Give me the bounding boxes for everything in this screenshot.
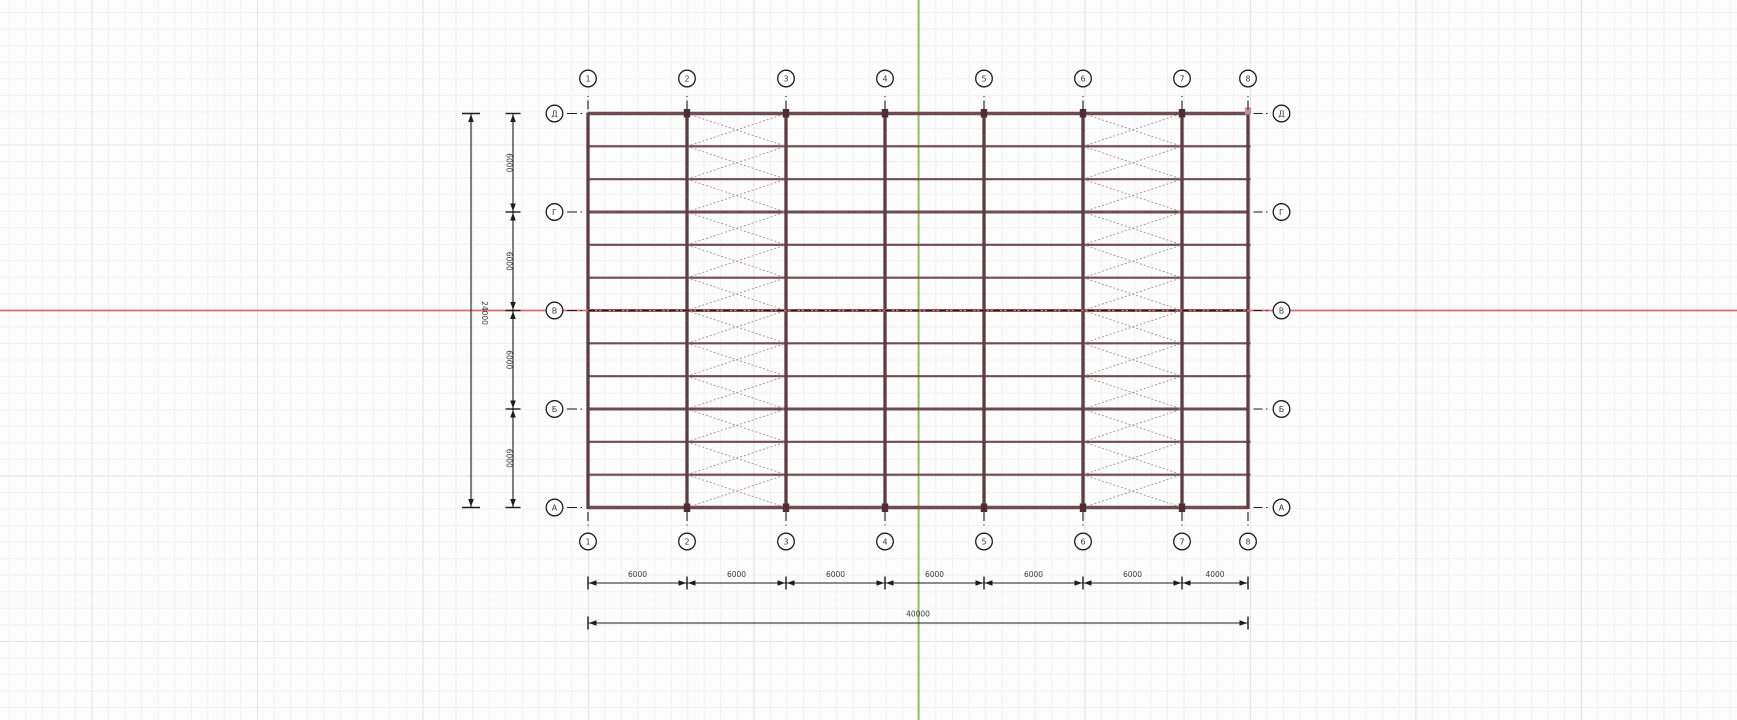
dimension-segment-label[interactable]: 6000: [505, 449, 514, 468]
dimension-segment-label[interactable]: 6000: [505, 153, 514, 172]
column-section-marker[interactable]: [1179, 504, 1185, 513]
model-viewport[interactable]: 24000 40000 6000600060006000600060006000…: [0, 0, 1737, 720]
column-section-marker[interactable]: [783, 109, 789, 118]
grid-bubble-label: 5: [981, 74, 986, 83]
dimensions: 24000 40000 6000600060006000600060006000…: [462, 114, 1248, 630]
dimension-arrow: [1084, 580, 1092, 586]
dimension-segment-label[interactable]: 6000: [505, 252, 514, 271]
grid-bubble-label: А: [552, 503, 558, 512]
dimension-segment-label[interactable]: 6000: [826, 570, 845, 579]
dimension-arrow: [688, 580, 696, 586]
dimension-arrow: [510, 204, 516, 212]
dimension-segment-label[interactable]: 6000: [925, 570, 944, 579]
dimension-arrow: [976, 580, 984, 586]
dimension-segment-label[interactable]: 6000: [1024, 570, 1043, 579]
dimension-arrow: [589, 620, 597, 626]
grid-bubble-label: 6: [1080, 74, 1085, 83]
grid-bubble-label: 3: [783, 537, 788, 546]
grid-bubble-label: 4: [882, 74, 887, 83]
dimension-arrow: [886, 580, 894, 586]
grid-bubble-label: 1: [585, 74, 590, 83]
column-section-marker[interactable]: [684, 109, 690, 118]
grid-bubble-label: 2: [684, 74, 689, 83]
column-section-marker[interactable]: [981, 109, 987, 118]
dimension-arrow: [510, 311, 516, 319]
grid-bubble-label: 6: [1080, 537, 1085, 546]
column-section-marker[interactable]: [684, 504, 690, 513]
dimension-arrow: [589, 580, 597, 586]
dimension-segment-label[interactable]: 6000: [1123, 570, 1142, 579]
dimension-segment-label[interactable]: 6000: [727, 570, 746, 579]
grid-bubble-label: Д: [551, 109, 557, 118]
dimension-arrow: [1240, 580, 1248, 586]
grid-bubble-label: Г: [552, 208, 557, 217]
grid-bubble-label: 2: [684, 537, 689, 546]
column-section-marker[interactable]: [882, 109, 888, 118]
dimension-total-left-label[interactable]: 24000: [480, 301, 489, 325]
dimension-total-bottom-label[interactable]: 40000: [906, 610, 930, 619]
dimension-arrow: [510, 410, 516, 418]
grid-bubble-label: 3: [783, 74, 788, 83]
dimension-arrow: [510, 114, 516, 122]
dimension-arrow: [510, 213, 516, 221]
dimension-arrow: [510, 302, 516, 310]
drawing-svg: 24000 40000 6000600060006000600060006000…: [0, 0, 1737, 720]
dimension-arrow: [778, 580, 786, 586]
dimension-arrow: [510, 401, 516, 409]
grid-bubble-label: Б: [552, 405, 558, 414]
dimension-arrow: [1174, 580, 1182, 586]
dimension-arrow: [985, 580, 993, 586]
grid-bubble-label: А: [1279, 503, 1285, 512]
grid-bubble-label: 8: [1245, 537, 1250, 546]
column-section-marker[interactable]: [783, 504, 789, 513]
grid-bubble-label: Г: [1279, 208, 1284, 217]
grid-bubble-label: В: [1279, 306, 1285, 315]
dimension-segment-label[interactable]: 4000: [1205, 570, 1224, 579]
dimension-arrow: [468, 499, 474, 507]
grid-bubble-label: Б: [1279, 405, 1285, 414]
dimension-arrow: [1075, 580, 1083, 586]
dimension-arrow: [877, 580, 885, 586]
dimension-segment-label[interactable]: 6000: [505, 350, 514, 369]
column-section-marker[interactable]: [882, 504, 888, 513]
grid-bubble-label: В: [552, 306, 558, 315]
column-section-marker[interactable]: [981, 504, 987, 513]
dimension-arrow: [510, 499, 516, 507]
dimension-segment-label[interactable]: 6000: [628, 570, 647, 579]
dimension-arrow: [679, 580, 687, 586]
dimension-arrow: [1240, 620, 1248, 626]
grid-bubble-label: 5: [981, 537, 986, 546]
dimension-arrow: [787, 580, 795, 586]
grid-bubble-label: 7: [1179, 74, 1184, 83]
dimension-arrow: [1183, 580, 1191, 586]
column-section-marker[interactable]: [1080, 504, 1086, 513]
grid-bubble-label: 1: [585, 537, 590, 546]
grid-bubble-label: 7: [1179, 537, 1184, 546]
grid-bubble-label: 4: [882, 537, 887, 546]
dimension-arrow: [468, 114, 474, 122]
grid-bubble-label: 8: [1245, 74, 1250, 83]
grid-bubble-label: Д: [1278, 109, 1284, 118]
column-section-marker[interactable]: [1080, 109, 1086, 118]
column-section-marker[interactable]: [1179, 109, 1185, 118]
